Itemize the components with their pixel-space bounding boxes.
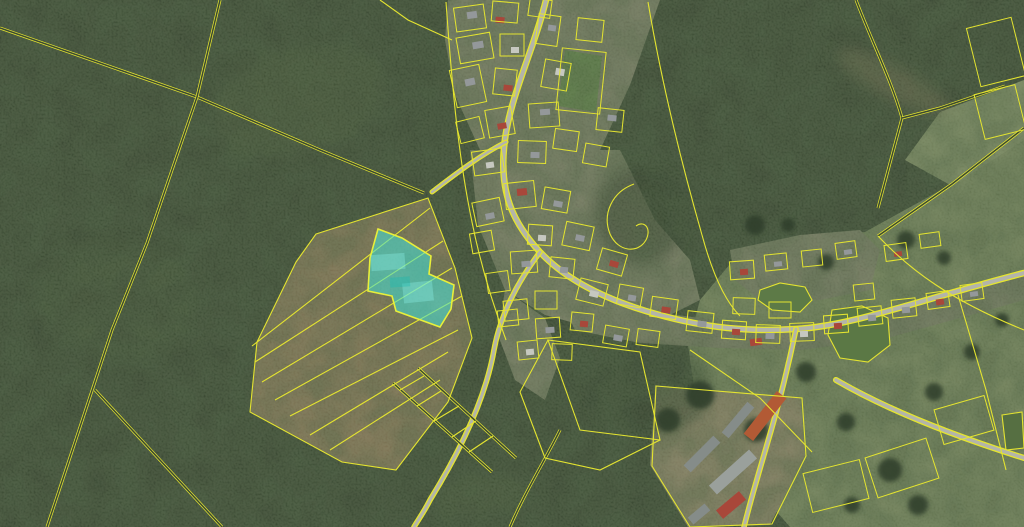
building — [530, 152, 539, 158]
building — [868, 315, 877, 322]
building — [511, 47, 519, 53]
building — [526, 349, 535, 356]
building — [560, 267, 569, 274]
tree-clump — [964, 344, 980, 360]
pond-corner — [1002, 412, 1024, 450]
building — [486, 161, 495, 168]
tree-clump — [818, 254, 834, 270]
highlighted-parcel-detail — [370, 253, 405, 271]
tree-clump — [925, 383, 943, 401]
tree-clump — [837, 413, 855, 431]
tree-clump — [781, 218, 795, 232]
building — [540, 109, 550, 116]
building — [834, 323, 842, 330]
building — [902, 307, 911, 314]
building — [467, 11, 478, 19]
tree-clump — [686, 381, 714, 409]
building — [740, 269, 748, 276]
building — [936, 298, 945, 305]
tree-clump — [995, 313, 1009, 327]
tree-clump — [656, 408, 680, 432]
tree-clump — [745, 215, 765, 235]
building — [607, 115, 617, 122]
tree-clump — [937, 251, 951, 265]
building — [774, 261, 782, 267]
building — [661, 306, 671, 313]
tree-clump — [796, 362, 816, 382]
tree-clump — [878, 458, 902, 482]
building — [545, 327, 554, 334]
building — [765, 333, 774, 339]
building — [517, 188, 528, 196]
texture-grain-light-overlay — [0, 0, 1024, 527]
building — [580, 321, 589, 328]
cadastral-map[interactable] — [0, 0, 1024, 527]
building — [732, 329, 740, 336]
building — [697, 321, 707, 328]
building — [521, 261, 530, 268]
map-viewport[interactable] — [0, 0, 1024, 527]
highlighted-parcel-detail — [390, 276, 411, 287]
building — [548, 24, 557, 31]
tree-clump — [844, 497, 860, 513]
building — [503, 85, 513, 92]
tree-clump — [908, 495, 928, 515]
building — [538, 235, 546, 242]
building — [800, 331, 808, 337]
